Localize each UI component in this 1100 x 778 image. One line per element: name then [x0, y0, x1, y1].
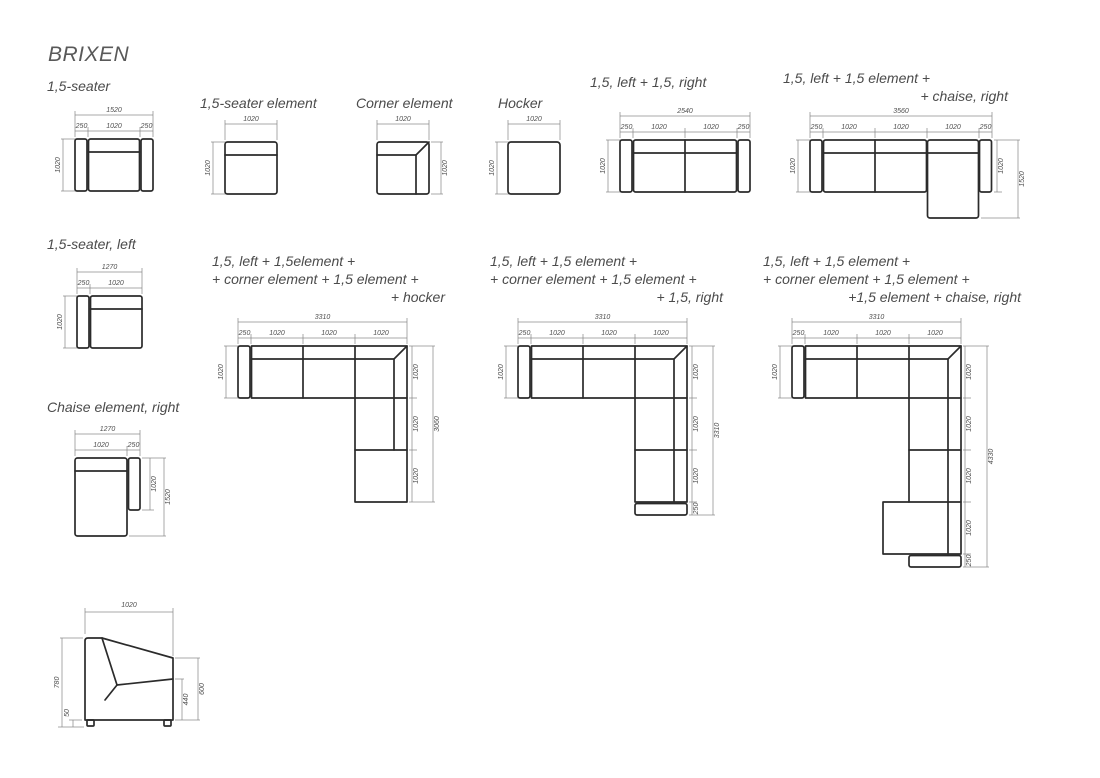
leg-left [87, 720, 94, 726]
armrest-bottom [909, 556, 961, 568]
diagram-config-hocker: 3310 250 1020 1020 1020 1020 1020 1020 1… [210, 300, 450, 512]
dimension-lines [504, 318, 715, 515]
diagram-config-15-right: 3310 250 1020 1020 1020 1020 1020 1020 1… [490, 300, 730, 525]
dim-depth: 1020 [772, 364, 779, 380]
dim-seg: 250 [810, 124, 823, 131]
dim-total: 1270 [100, 426, 116, 433]
dim-right-seg: 1020 [693, 416, 700, 432]
armrest-left [810, 140, 822, 192]
module-outline [225, 142, 277, 194]
dim-seg: 1020 [321, 330, 337, 337]
dim-right-seg: 1020 [413, 416, 420, 432]
dim-depth: 1020 [790, 158, 797, 174]
diagram-15-seater-element: 1020 1020 [200, 105, 300, 205]
dim-seg: 250 [979, 124, 992, 131]
dim-seg: 1020 [373, 330, 389, 337]
armrest-left [238, 346, 250, 398]
dim-seg: 1020 [269, 330, 285, 337]
dim-seg: 250 [238, 330, 251, 337]
armrest-left [792, 346, 804, 398]
dim-seg: 1020 [945, 124, 961, 131]
diagram-side-profile: 1020 780 50 440 600 [40, 593, 215, 743]
label-line-1: 1,5, left + 1,5element + [212, 252, 445, 270]
dim-width: 1020 [243, 116, 259, 123]
dim-right-seg: 250 [693, 503, 700, 516]
dim-total: 1270 [102, 264, 118, 271]
dim-right-seg: 1020 [413, 468, 420, 484]
leg-right [164, 720, 171, 726]
diagram-corner-element: 1020 1020 [355, 105, 460, 205]
dim-total: 3310 [595, 314, 611, 321]
armrest-right [738, 140, 750, 192]
label-line-2: + corner element + 1,5 element + [763, 270, 1021, 288]
diagram-chaise-config: 3560 250 1020 1020 1020 250 1020 1020 15… [775, 98, 1037, 228]
dim-depth: 1020 [600, 158, 607, 174]
seat-module [89, 139, 140, 191]
backrest-lines [377, 155, 416, 194]
dim-right-total: 3060 [434, 416, 441, 432]
label-line-1: 1,5, left + 1,5 element + [783, 69, 1008, 87]
dim-width: 1020 [121, 602, 137, 609]
sofa-profile-outline [85, 638, 173, 720]
label-line-2: + corner element + 1,5 element + [212, 270, 445, 288]
dim-depth: 1020 [218, 364, 225, 380]
backrest-lines [252, 359, 395, 450]
diagram-config-chaise-right: 3310 250 1020 1020 1020 1020 1020 1020 1… [760, 300, 1005, 575]
dim-seg: 1020 [651, 124, 667, 131]
corner-diagonal [416, 142, 429, 155]
dim-right-total: 4330 [988, 449, 995, 465]
dim-total: 1520 [106, 107, 122, 114]
label-line-1: 1,5, left + 1,5 element + [763, 252, 1021, 270]
diagram-15-seater: 1520 250 1020 250 1020 [40, 100, 190, 200]
dimension-lines [377, 120, 443, 194]
corner-diagonal [948, 346, 961, 359]
dim-seg: 1020 [549, 330, 565, 337]
dim-right-outer: 1520 [165, 489, 172, 505]
dimension-lines [495, 120, 560, 194]
dim-leg-height: 50 [64, 709, 71, 717]
dim-depth: 1020 [57, 314, 64, 330]
dim-seg: 1020 [875, 330, 891, 337]
armrest-left [620, 140, 632, 192]
backrest-lines [532, 359, 675, 502]
dim-seg: 250 [77, 280, 90, 287]
dim-right-seg: 1020 [966, 520, 973, 536]
armrest-right [980, 140, 992, 192]
dim-depth: 1020 [489, 160, 496, 176]
dim-seg: 1020 [93, 442, 109, 449]
dim-seg: 1020 [601, 330, 617, 337]
seat-module [91, 296, 143, 348]
dim-right-inner: 1020 [998, 158, 1005, 174]
dim-seg: 250 [792, 330, 805, 337]
dim-right-outer: 1520 [1019, 171, 1026, 187]
page-title: BRIXEN [48, 43, 129, 67]
dim-seg: 1020 [106, 123, 122, 130]
diagram-15-seater-left: 1270 250 1020 1020 [50, 255, 170, 360]
dim-seg: 1020 [653, 330, 669, 337]
dim-right-total: 3310 [714, 423, 721, 439]
dim-seg: 250 [518, 330, 531, 337]
sofa-outline [532, 346, 688, 502]
dim-total: 3310 [869, 314, 885, 321]
dimension-lines [63, 268, 142, 348]
dim-right-seg: 1020 [966, 364, 973, 380]
backrest-lines [806, 359, 949, 554]
dim-right-seg: 1020 [693, 364, 700, 380]
dim-seg: 1020 [703, 124, 719, 131]
dim-depth: 1020 [205, 160, 212, 176]
dim-seg: 250 [737, 124, 750, 131]
sofa-outline [252, 346, 408, 502]
armrest-left [75, 139, 87, 191]
label-line-1: 1,5, left + 1,5 element + [490, 252, 723, 270]
dim-seg: 250 [75, 123, 88, 130]
armrest-right [141, 139, 153, 191]
chaise-body [75, 458, 127, 536]
label-15-left-15-right: 1,5, left + 1,5, right [590, 74, 706, 91]
label-15-seater-left: 1,5-seater, left [47, 236, 136, 253]
label-config-chaise-right: 1,5, left + 1,5 element + + corner eleme… [763, 252, 1021, 306]
dim-width: 1020 [395, 116, 411, 123]
dim-total: 2540 [676, 108, 693, 115]
diagram-chaise-element-right: 1270 1020 250 1020 1520 [50, 415, 180, 550]
dim-right-seg: 1020 [413, 364, 420, 380]
dim-right-seg: 1020 [966, 416, 973, 432]
module-outline [508, 142, 560, 194]
label-config-hocker: 1,5, left + 1,5element + + corner elemen… [212, 252, 445, 306]
label-line-2: + corner element + 1,5 element + [490, 270, 723, 288]
diagram-hocker: 1020 1020 [480, 105, 580, 205]
backrest-profile-line [102, 638, 117, 700]
dim-total: 3310 [315, 314, 331, 321]
dim-seat-height: 440 [183, 694, 190, 706]
dim-seg: 250 [140, 123, 153, 130]
dim-total: 3560 [893, 108, 909, 115]
dim-seg: 1020 [893, 124, 909, 131]
armrest-bottom [635, 504, 687, 516]
dim-right-inner: 1020 [151, 476, 158, 492]
dim-seg: 1020 [108, 280, 124, 287]
armrest-right [129, 458, 141, 510]
dimension-lines [211, 120, 277, 194]
dim-right-seg: 1020 [693, 468, 700, 484]
label-config-15-right: 1,5, left + 1,5 element + + corner eleme… [490, 252, 723, 306]
dim-depth: 1020 [498, 364, 505, 380]
dim-seg: 250 [127, 442, 140, 449]
chaise-module [928, 140, 979, 218]
dim-back-height: 600 [199, 683, 206, 695]
dim-seg: 1020 [823, 330, 839, 337]
dimension-lines [58, 608, 200, 727]
label-15-seater: 1,5-seater [47, 78, 110, 95]
corner-diagonal [674, 346, 687, 359]
dim-seg: 1020 [841, 124, 857, 131]
dim-depth: 1020 [442, 160, 449, 176]
spec-sheet: BRIXEN 1,5-seater 1520 250 1020 250 1020… [0, 0, 1100, 778]
corner-diagonal [394, 346, 407, 359]
dim-height: 780 [54, 677, 61, 689]
dim-width: 1020 [526, 116, 542, 123]
dim-seg: 250 [620, 124, 633, 131]
label-chaise-element-right: Chaise element, right [47, 399, 179, 416]
dim-right-seg: 1020 [966, 468, 973, 484]
dim-right-seg: 250 [966, 555, 973, 568]
dim-depth: 1020 [55, 157, 62, 173]
diagram-15-left-15-right: 2540 250 1020 1020 250 1020 [595, 95, 770, 205]
armrest-left [518, 346, 530, 398]
armrest-left [77, 296, 89, 348]
dim-seg: 1020 [927, 330, 943, 337]
seat-profile-line [117, 679, 173, 685]
